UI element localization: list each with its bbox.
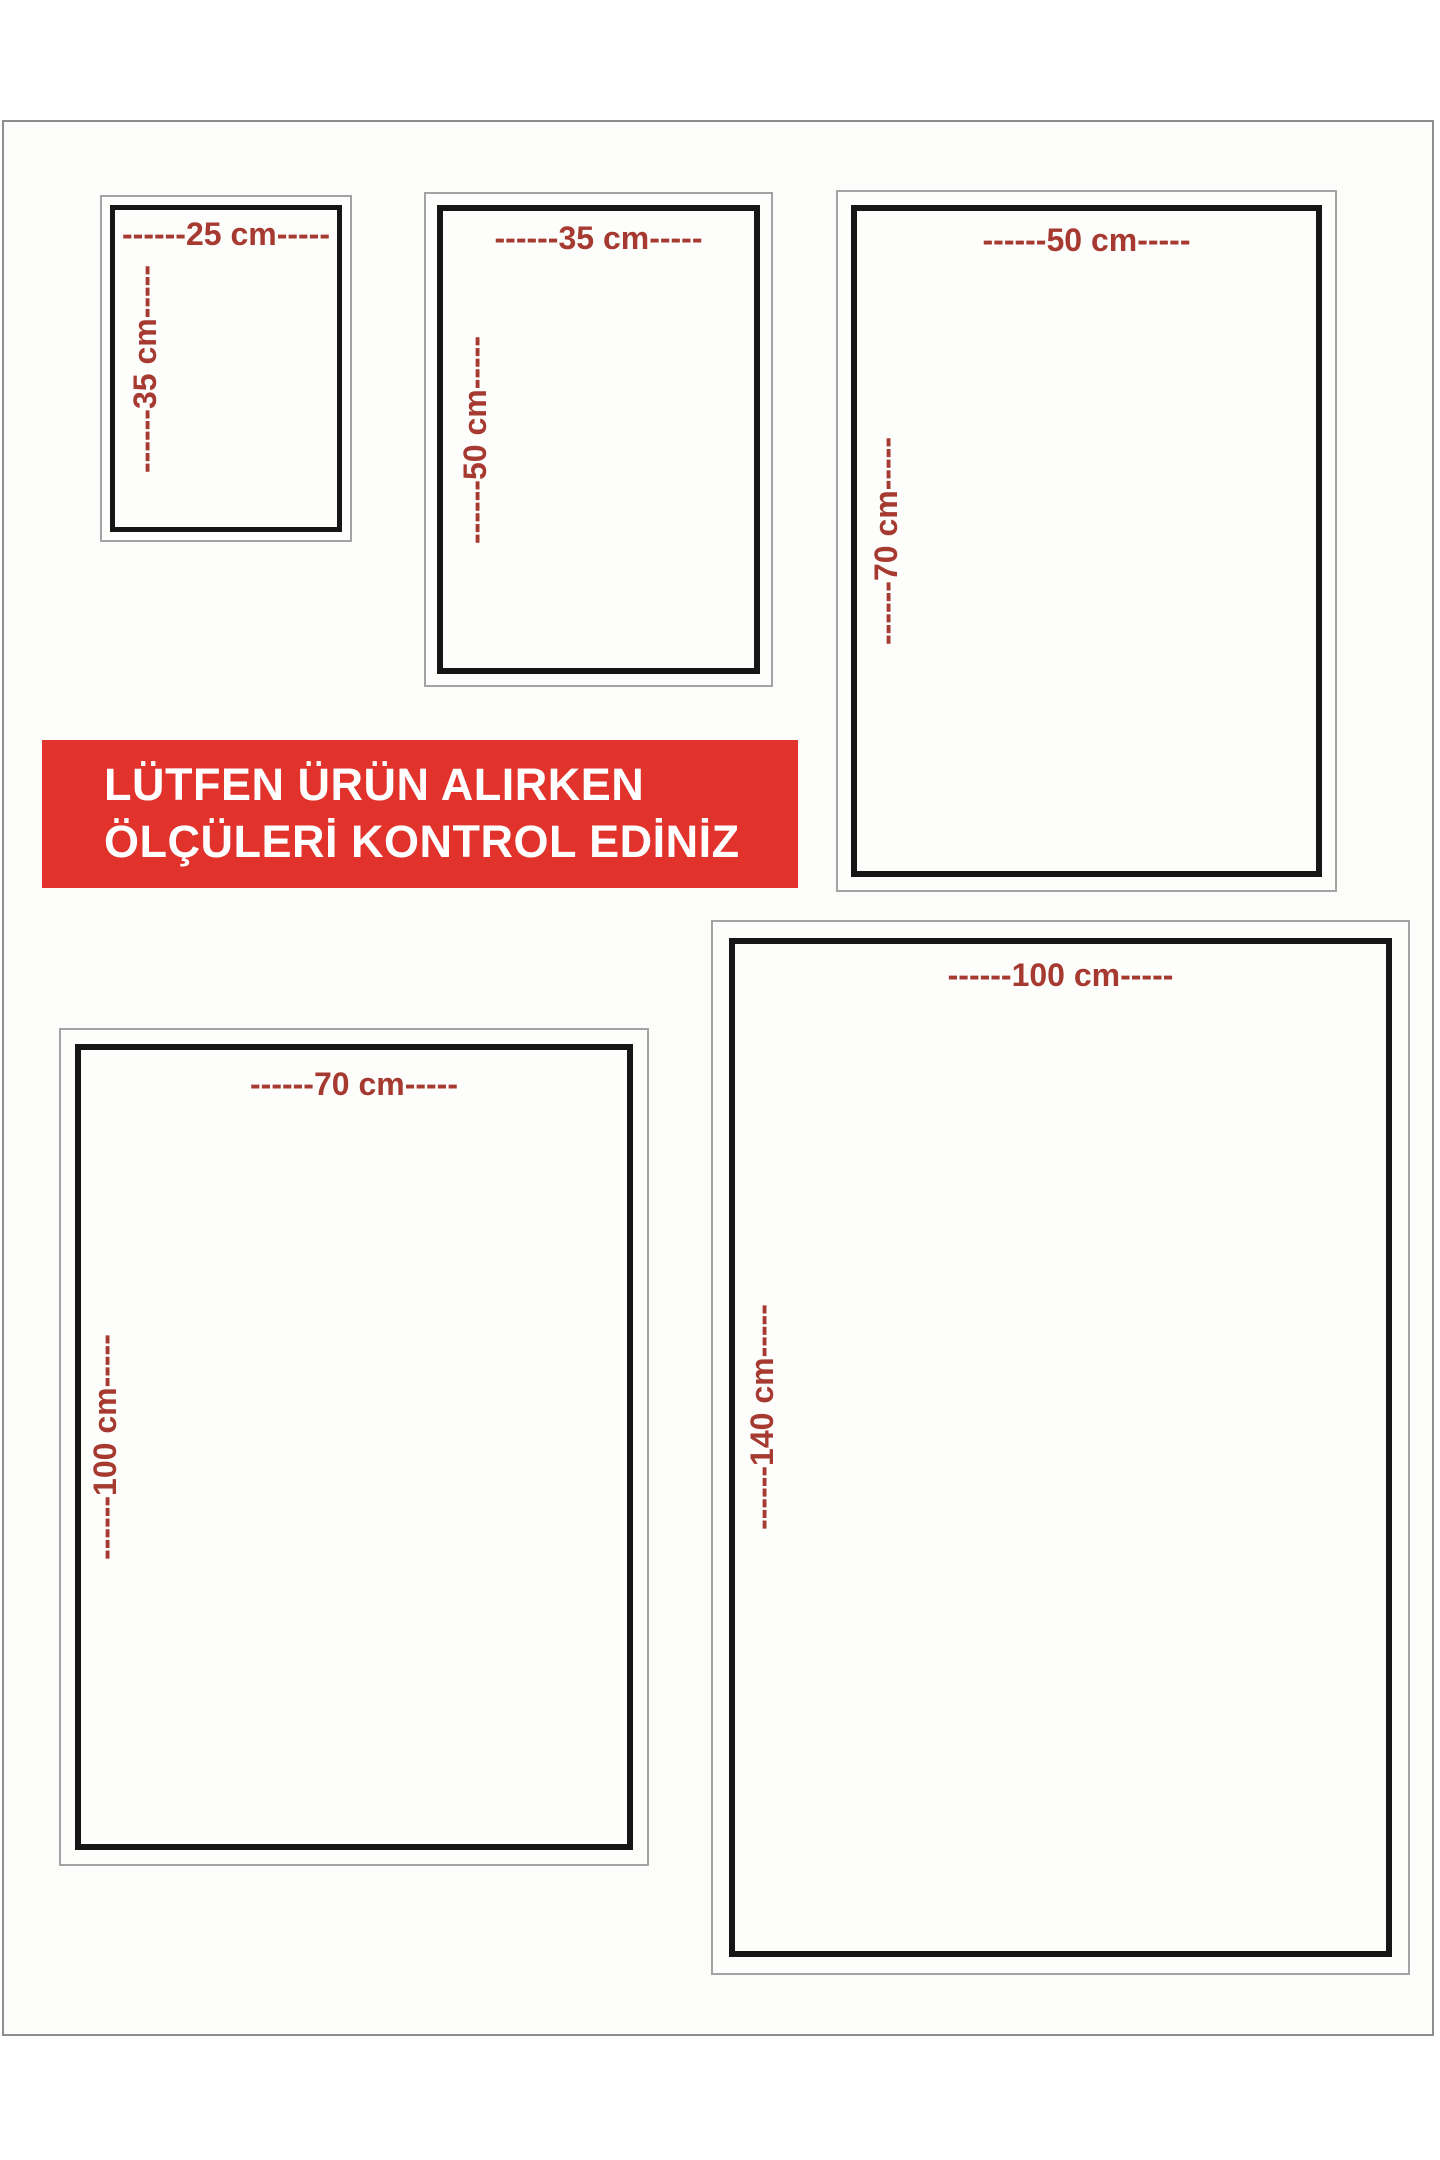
- height-dimension-label-35cm: ------35 cm-----: [127, 265, 164, 473]
- size-frame-35x50: ------35 cm----- ------50 cm-----: [424, 192, 773, 687]
- size-frame-100x140-inner-border: ------100 cm----- ------140 cm-----: [729, 938, 1392, 1957]
- warning-banner-line-1: LÜTFEN ÜRÜN ALIRKEN: [104, 756, 788, 813]
- width-dimension-label-100cm: ------100 cm-----: [735, 957, 1386, 994]
- size-frame-70x100: ------70 cm----- ------100 cm-----: [59, 1028, 649, 1866]
- height-dimension-label-50cm: ------50 cm-----: [457, 336, 494, 544]
- warning-banner-line-2: ÖLÇÜLERİ KONTROL EDİNİZ: [104, 813, 788, 870]
- warning-banner: LÜTFEN ÜRÜN ALIRKEN ÖLÇÜLERİ KONTROL EDİ…: [42, 740, 798, 888]
- size-frame-35x50-inner-border: ------35 cm----- ------50 cm-----: [437, 205, 760, 674]
- height-dimension-label-140cm: ------140 cm-----: [744, 1304, 781, 1530]
- size-frame-100x140: ------100 cm----- ------140 cm-----: [711, 920, 1410, 1975]
- size-frame-25x35-inner-border: ------25 cm----- ------35 cm-----: [110, 205, 342, 532]
- size-frame-50x70: ------50 cm----- ------70 cm-----: [836, 190, 1337, 892]
- size-guide-image: ------25 cm----- ------35 cm----- ------…: [0, 0, 1440, 2160]
- height-dimension-label-100cm: ------100 cm-----: [87, 1334, 124, 1560]
- height-dimension-label-70cm: ------70 cm-----: [868, 437, 905, 645]
- width-dimension-label-70cm: ------70 cm-----: [81, 1066, 627, 1103]
- width-dimension-label-50cm: ------50 cm-----: [857, 222, 1316, 259]
- size-frame-70x100-inner-border: ------70 cm----- ------100 cm-----: [75, 1044, 633, 1850]
- width-dimension-label-35cm: ------35 cm-----: [443, 220, 754, 257]
- size-frame-25x35: ------25 cm----- ------35 cm-----: [100, 195, 352, 542]
- width-dimension-label-25cm: ------25 cm-----: [115, 216, 337, 253]
- size-frame-50x70-inner-border: ------50 cm----- ------70 cm-----: [851, 205, 1322, 877]
